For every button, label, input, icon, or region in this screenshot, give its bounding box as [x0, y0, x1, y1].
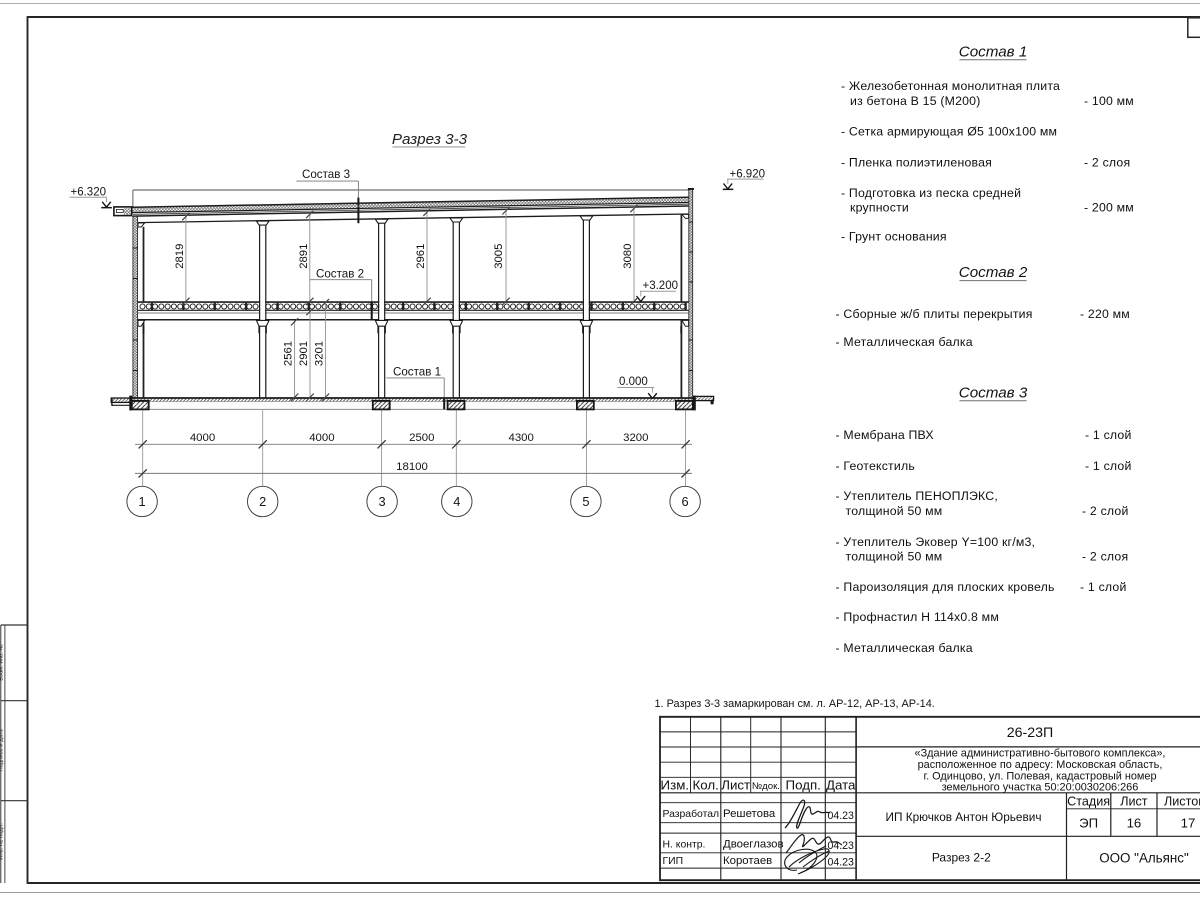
svg-text:- 220 мм: - 220 мм — [1080, 307, 1130, 321]
svg-text:+6.320: +6.320 — [71, 186, 107, 198]
svg-text:- Железобетонная монолитная п: - Железобетонная монолитная плита — [841, 79, 1060, 93]
svg-text:- Сборные ж/б плиты перекрытия: - Сборные ж/б плиты перекрытия — [836, 307, 1033, 321]
svg-text:- Подготовка из песка средней: - Подготовка из песка средней — [841, 186, 1021, 200]
svg-text:Состав 2: Состав 2 — [316, 267, 364, 280]
svg-text:толщиной 50 мм: толщиной 50 мм — [846, 504, 943, 518]
svg-text:Изм.: Изм. — [661, 777, 690, 792]
svg-text:ООО "Альянс": ООО "Альянс" — [1099, 851, 1189, 866]
svg-text:04.23: 04.23 — [827, 810, 854, 822]
svg-text:2819: 2819 — [174, 244, 186, 269]
svg-text:- Металлическая балка: - Металлическая балка — [836, 641, 973, 655]
svg-text:№док.: №док. — [752, 781, 780, 792]
svg-text:- 100 мм: - 100 мм — [1084, 94, 1134, 108]
svg-text:Состав 3: Состав 3 — [302, 168, 350, 181]
svg-text:- Профнастил Н 114х0.8 мм: - Профнастил Н 114х0.8 мм — [836, 610, 999, 624]
svg-text:- Утеплитель Эковер Y=100 кг/м: - Утеплитель Эковер Y=100 кг/м3, — [836, 535, 1036, 549]
svg-text:Состав 1: Состав 1 — [393, 366, 441, 379]
svg-text:Подпись и дата: Подпись и дата — [0, 729, 4, 772]
svg-text:Стадия: Стадия — [1067, 795, 1110, 809]
svg-text:1. Разрез 3-3 замаркирован см.: 1. Разрез 3-3 замаркирован см. л. АР-12,… — [655, 698, 935, 710]
svg-text:0.000: 0.000 — [619, 376, 648, 388]
svg-text:3: 3 — [379, 494, 386, 509]
svg-text:Взам. инв. №: Взам. инв. № — [0, 644, 4, 681]
svg-text:Разработал: Разработал — [663, 808, 720, 820]
svg-text:1: 1 — [139, 494, 146, 509]
svg-text:- Мембрана ПВХ: - Мембрана ПВХ — [836, 428, 934, 442]
svg-text:Лист: Лист — [721, 777, 750, 792]
svg-text:- 2 слоя: - 2 слоя — [1082, 550, 1128, 564]
svg-text:2891: 2891 — [298, 244, 310, 269]
svg-text:5: 5 — [582, 494, 589, 509]
svg-text:Состав 3: Состав 3 — [959, 385, 1028, 402]
svg-text:18100: 18100 — [396, 461, 428, 473]
svg-text:Лист: Лист — [1120, 795, 1148, 809]
svg-text:Листов: Листов — [1164, 795, 1200, 809]
svg-text:3201: 3201 — [313, 341, 325, 366]
svg-text:Коротаев: Коротаев — [723, 855, 772, 867]
svg-text:крупности: крупности — [850, 201, 909, 215]
svg-text:4000: 4000 — [190, 432, 215, 444]
svg-text:4000: 4000 — [309, 432, 334, 444]
svg-text:- Пленка полиэтиленовая: - Пленка полиэтиленовая — [841, 156, 992, 170]
svg-text:3080: 3080 — [622, 244, 634, 269]
svg-text:- Геотекстиль: - Геотекстиль — [836, 459, 915, 473]
svg-text:- Металлическая балка: - Металлическая балка — [836, 335, 973, 349]
svg-text:3200: 3200 — [623, 432, 648, 444]
svg-text:- 200 мм: - 200 мм — [1084, 201, 1134, 215]
svg-text:- 1 слой: - 1 слой — [1085, 428, 1132, 442]
svg-text:16: 16 — [1127, 816, 1142, 831]
svg-text:26-23П: 26-23П — [1007, 725, 1053, 741]
svg-text:ГИП: ГИП — [663, 856, 684, 867]
svg-text:Разрез 3-3: Разрез 3-3 — [392, 131, 468, 148]
svg-text:2: 2 — [259, 494, 266, 509]
svg-text:Дата: Дата — [826, 777, 856, 792]
svg-text:04.23: 04.23 — [827, 857, 854, 869]
svg-text:Состав 1: Состав 1 — [959, 44, 1028, 61]
svg-text:2961: 2961 — [415, 244, 427, 269]
svg-text:из бетона В 15 (М200): из бетона В 15 (М200) — [850, 94, 981, 108]
svg-text:Разрез 2-2: Разрез 2-2 — [932, 851, 991, 865]
svg-text:Подп.: Подп. — [786, 777, 821, 792]
svg-text:17: 17 — [1181, 816, 1196, 831]
svg-text:2500: 2500 — [409, 432, 434, 444]
svg-text:+6.920: +6.920 — [730, 168, 766, 180]
svg-text:земельного участка 50:20:00302: земельного участка 50:20:0030206:266 — [942, 782, 1139, 794]
svg-text:- Грунт основания: - Грунт основания — [841, 230, 947, 244]
svg-text:Состав 2: Состав 2 — [959, 264, 1028, 281]
svg-text:ЭП: ЭП — [1079, 816, 1098, 831]
svg-text:«Здание административно-бытово: «Здание административно-бытового комплек… — [915, 747, 1166, 759]
svg-text:Инв. № подл.: Инв. № подл. — [0, 823, 4, 860]
svg-text:- 1 слой: - 1 слой — [1085, 459, 1132, 473]
svg-text:Двоеглазов: Двоеглазов — [723, 839, 784, 851]
svg-text:- 1 слой: - 1 слой — [1080, 580, 1127, 594]
svg-text:- 2 слоя: - 2 слоя — [1084, 156, 1130, 170]
svg-text:толщиной 50 мм: толщиной 50 мм — [846, 550, 943, 564]
svg-text:4: 4 — [453, 494, 460, 509]
svg-text:3005: 3005 — [493, 244, 505, 269]
svg-text:расположенное по адресу: Моско: расположенное по адресу: Московская обла… — [918, 759, 1163, 771]
svg-text:Кол.: Кол. — [693, 777, 719, 792]
svg-text:- Утеплитель ПЕНОПЛЭКС,: - Утеплитель ПЕНОПЛЭКС, — [836, 489, 998, 503]
svg-text:2901: 2901 — [298, 341, 310, 366]
svg-text:ИП Крючков Антон Юрьевич: ИП Крючков Антон Юрьевич — [886, 810, 1042, 824]
svg-text:6: 6 — [682, 494, 689, 509]
svg-text:- Пароизоляция для плоских кро: - Пароизоляция для плоских кровель — [836, 580, 1055, 594]
svg-text:4300: 4300 — [509, 432, 534, 444]
svg-text:- 2 слой: - 2 слой — [1082, 504, 1129, 518]
svg-text:Решетова: Решетова — [723, 808, 776, 820]
svg-text:Н. контр.: Н. контр. — [663, 840, 706, 851]
svg-text:+3.200: +3.200 — [643, 280, 679, 292]
svg-text:2561: 2561 — [283, 341, 295, 366]
svg-text:- Сетка армирующая Ø5 100х100: - Сетка армирующая Ø5 100х100 мм — [841, 125, 1057, 139]
